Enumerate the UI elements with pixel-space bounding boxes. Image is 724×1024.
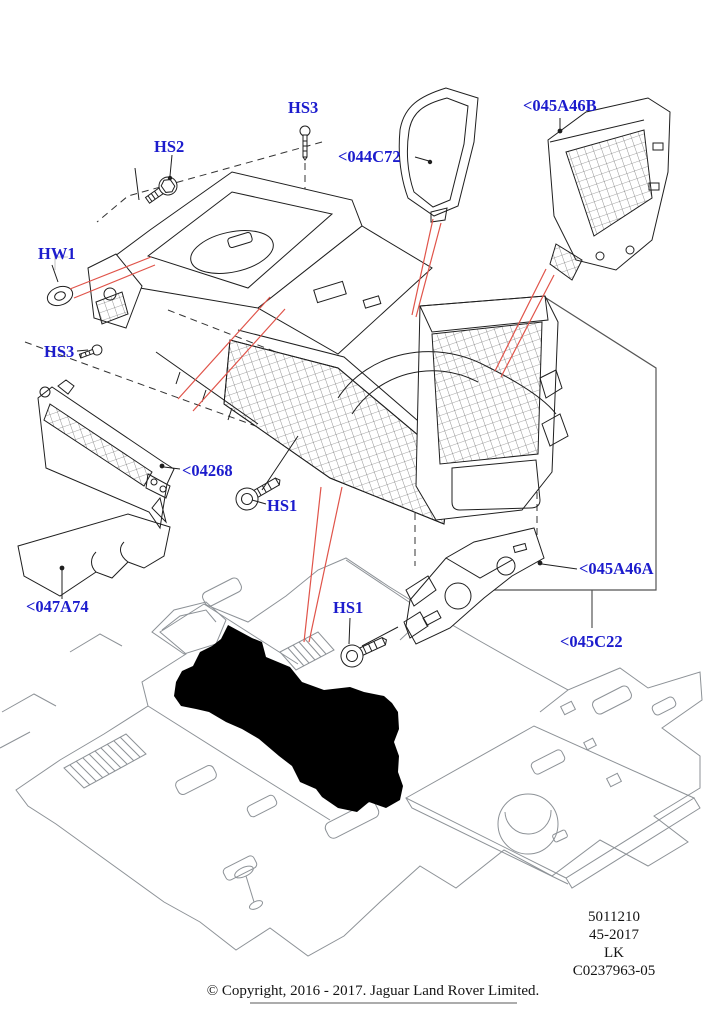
code-drawing-number: 5011210 (588, 909, 640, 925)
console-grill-hatch (280, 632, 334, 670)
copyright-line: © Copyright, 2016 - 2017. Jaguar Land Ro… (207, 983, 540, 999)
part-04268-drawing (38, 380, 174, 528)
callout-hs3-top[interactable]: HS3 (288, 98, 318, 117)
part-047a74-drawing (18, 514, 170, 596)
callout-hs2[interactable]: HS2 (154, 137, 184, 156)
part-045a46a-drawing (404, 528, 544, 644)
callout-044c72[interactable]: <044C72 (338, 147, 401, 166)
washer-hw1-icon (45, 283, 76, 309)
callout-045a46b[interactable]: <045A46B (523, 96, 597, 115)
callout-hs3-left[interactable]: HS3 (44, 342, 74, 361)
part-045a46b-drawing (548, 98, 670, 280)
callout-hw1[interactable]: HW1 (38, 244, 76, 263)
screw-hs3-left-icon (78, 344, 103, 361)
callout-04268[interactable]: <04268 (182, 461, 233, 480)
bolt-hs1-bottom-icon (337, 630, 391, 671)
footrest-hatch (64, 734, 146, 788)
footer-code-block: 5011210 45-2017 LK C0237963-05 (573, 909, 656, 979)
code-market: LK (604, 945, 624, 961)
callout-045a46a[interactable]: <045A46A (579, 559, 654, 578)
code-date: 45-2017 (589, 927, 639, 943)
callout-hs1-bottom[interactable]: HS1 (333, 598, 363, 617)
exploded-view-diagram: HS2 HS3 <044C72 <045A46B HW1 HS3 <04268 … (0, 0, 724, 1024)
part-044c72-drawing (399, 88, 478, 222)
callout-hs1-mid[interactable]: HS1 (267, 496, 297, 515)
callout-047a74[interactable]: <047A74 (26, 597, 89, 616)
code-reference: C0237963-05 (573, 963, 656, 979)
corner-tick (135, 168, 139, 200)
screw-hs3-top-icon (300, 126, 310, 160)
parts-diagram-page: HS2 HS3 <044C72 <045A46B HW1 HS3 <04268 … (0, 0, 724, 1024)
callout-045c22[interactable]: <045C22 (560, 632, 623, 651)
